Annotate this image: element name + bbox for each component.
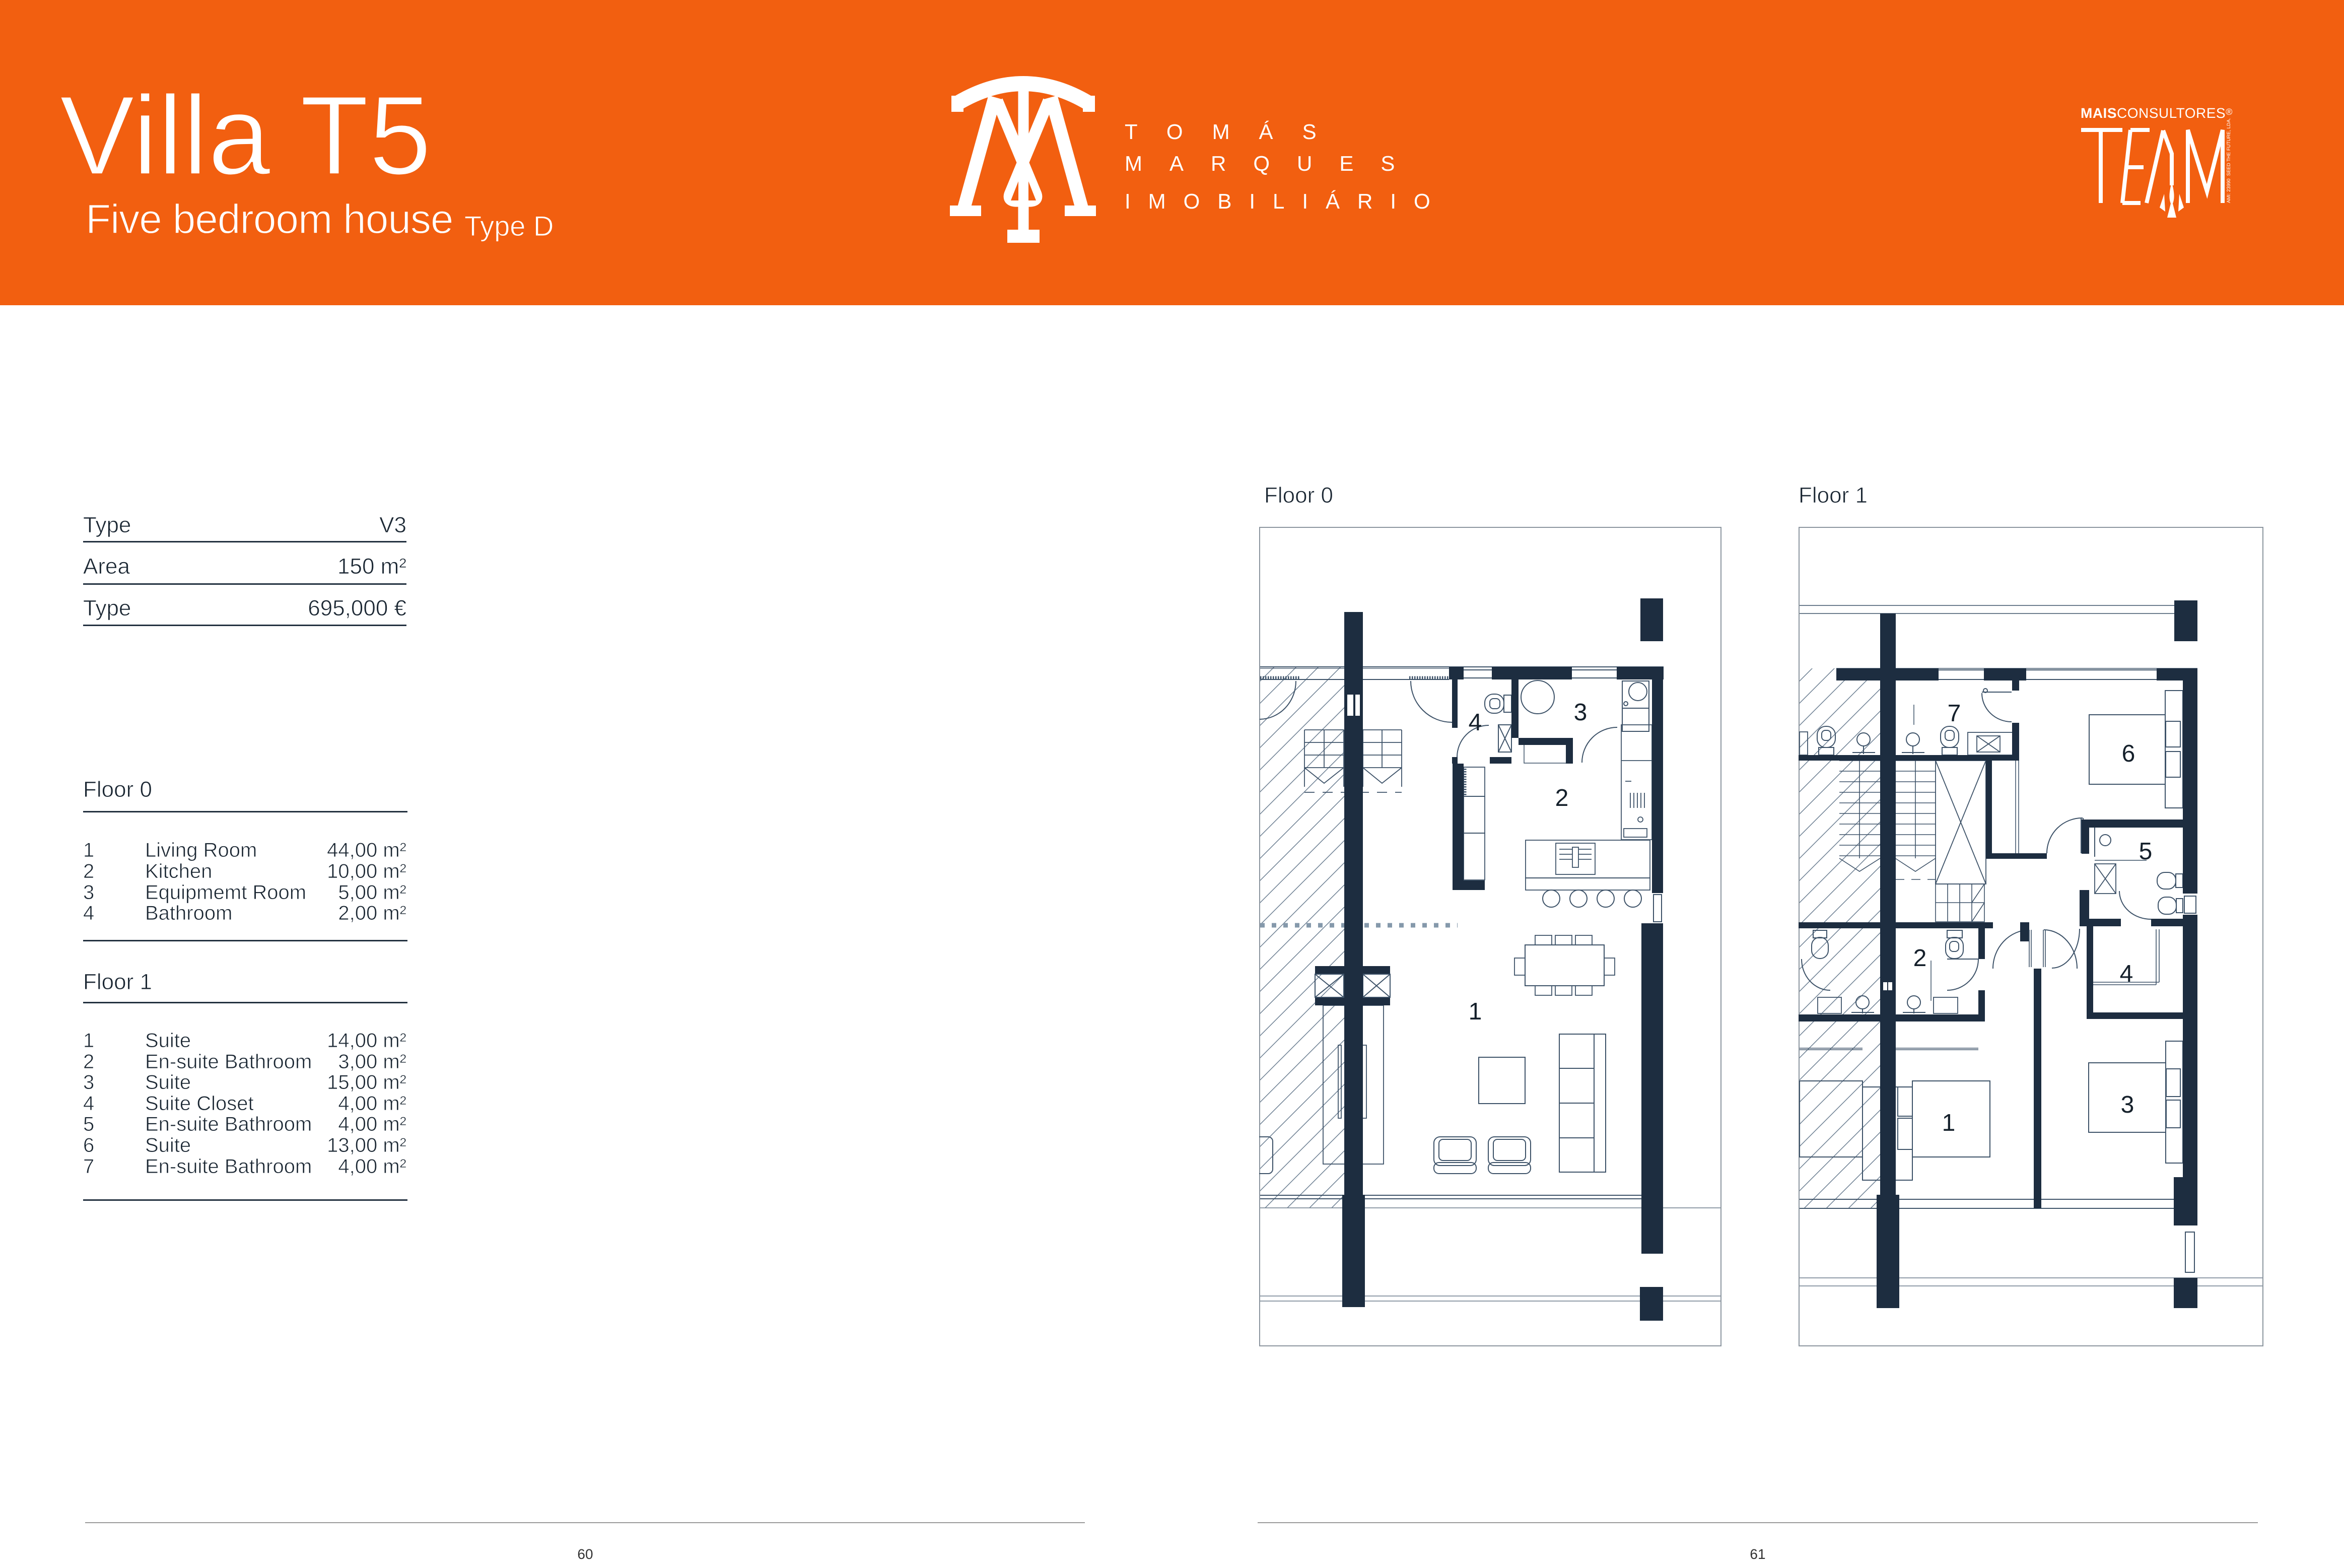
- svg-text:4: 4: [1469, 709, 1482, 736]
- svg-text:5: 5: [2139, 838, 2153, 865]
- svg-text:1: 1: [1942, 1110, 1956, 1136]
- svg-text:7: 7: [1948, 700, 1961, 727]
- svg-text:3: 3: [2121, 1092, 2134, 1118]
- svg-text:2: 2: [1555, 785, 1569, 811]
- svg-text:2: 2: [1913, 945, 1927, 972]
- svg-text:6: 6: [2122, 740, 2135, 767]
- svg-text:3: 3: [1574, 699, 1588, 726]
- svg-text:4: 4: [2120, 961, 2133, 987]
- svg-text:1: 1: [1469, 998, 1482, 1025]
